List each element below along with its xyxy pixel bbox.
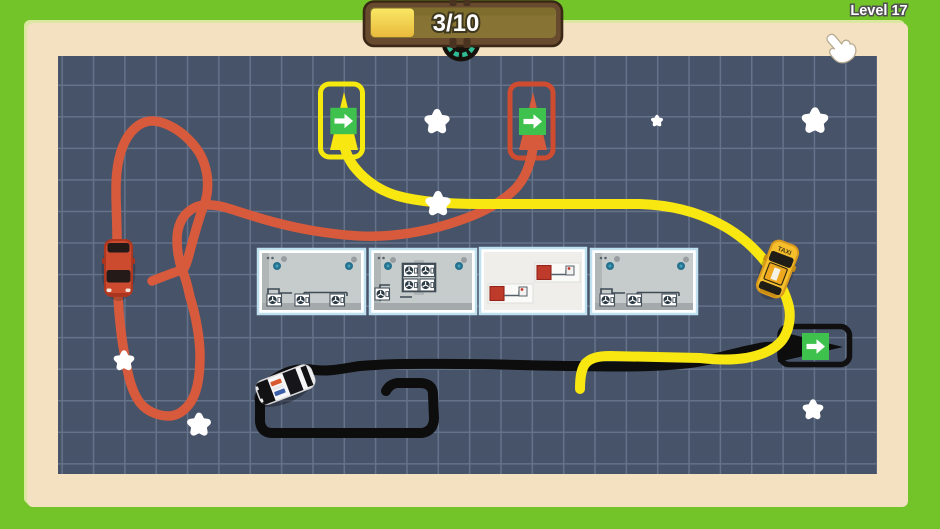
- svg-text:Level 17: Level 17: [850, 3, 907, 19]
- svg-text:3/10: 3/10: [433, 10, 480, 37]
